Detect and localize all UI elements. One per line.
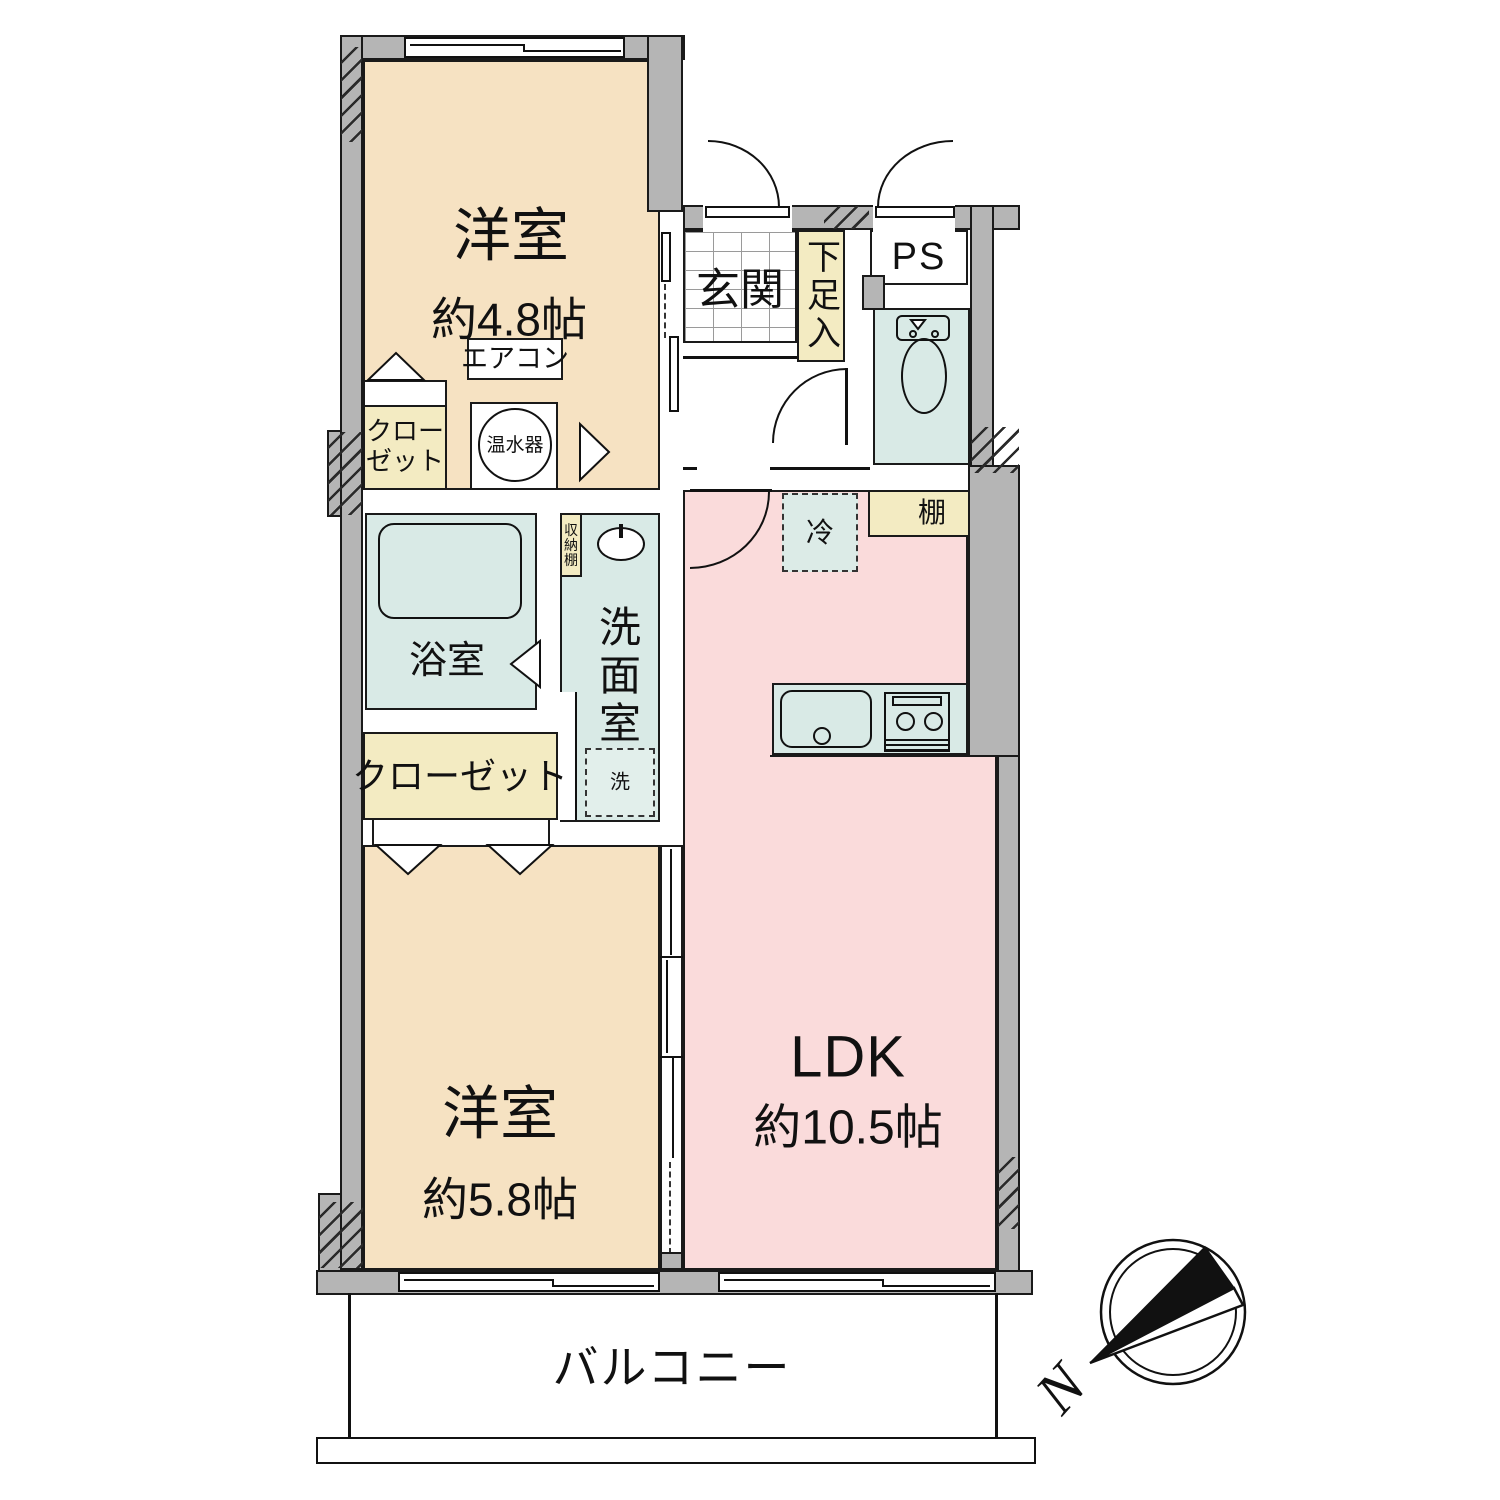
stove-grill-2 bbox=[886, 744, 948, 746]
closet-upper-door-strip bbox=[363, 380, 447, 407]
pipe-space-label: PS bbox=[892, 236, 947, 280]
balcony-rail bbox=[316, 1437, 1036, 1464]
refrigerator-label: 冷 bbox=[806, 517, 834, 549]
toilet-bolt-right bbox=[931, 330, 939, 338]
hatch-entrance-wall bbox=[824, 206, 869, 229]
ps-door-leaf bbox=[875, 206, 955, 218]
hatch-right-step bbox=[971, 427, 1019, 473]
compass-north-letter: N bbox=[1030, 1349, 1100, 1426]
ldk-name-label: LDK bbox=[790, 1025, 906, 1092]
floor-plan: N 洋室 約4.8帖 洋室 約5.8帖 LDK 約10.5帖 玄関 下足入 PS… bbox=[0, 0, 1500, 1500]
stove-grill-1 bbox=[886, 739, 948, 741]
entrance-door-leaf bbox=[705, 206, 790, 218]
partition-dashed-line bbox=[669, 1162, 671, 1254]
balcony-label: バルコニー bbox=[552, 1342, 791, 1395]
closet-upper-label-line1: クロー bbox=[366, 417, 444, 447]
wall-right-mid bbox=[968, 465, 1020, 757]
balcony-right-edge bbox=[995, 1293, 998, 1438]
compass-needle-light bbox=[1090, 1288, 1243, 1363]
hall-wall-line-2 bbox=[770, 467, 870, 470]
entrance-door-arc bbox=[708, 140, 780, 207]
partition-panel-line-3 bbox=[672, 1058, 674, 1158]
closet-lower-door-strip bbox=[372, 818, 550, 847]
toilet-bowl bbox=[901, 338, 947, 414]
partition-divider-1 bbox=[660, 956, 683, 958]
balcony-left-edge bbox=[348, 1293, 351, 1438]
partition-end-block bbox=[660, 1252, 683, 1270]
entrance-step-line bbox=[683, 356, 797, 359]
stove-top-bar bbox=[892, 696, 942, 706]
room1-size-label: 約4.8帖 bbox=[431, 294, 587, 347]
stove-grill-3 bbox=[886, 749, 948, 751]
bathroom-label: 浴室 bbox=[409, 640, 485, 684]
window-br-pane-1 bbox=[724, 1279, 884, 1281]
hatch-bottom-left bbox=[319, 1202, 363, 1268]
window-bottom-right bbox=[718, 1272, 996, 1292]
wash-basin-tap bbox=[619, 524, 623, 538]
window-bottom-left bbox=[398, 1272, 660, 1292]
ldk-seam-patch bbox=[685, 751, 770, 759]
toilet-bolt-left bbox=[909, 330, 917, 338]
hall-slider-panel-1 bbox=[661, 232, 671, 282]
window-top-pane-2 bbox=[523, 50, 621, 52]
hall-slider-dashed bbox=[664, 284, 666, 338]
stove-burner-right bbox=[924, 712, 943, 731]
room2-size-label: 約5.8帖 bbox=[422, 1174, 578, 1227]
closet-lower-label: クローゼット bbox=[352, 755, 568, 796]
compass-outer-circle bbox=[1101, 1240, 1245, 1384]
window-top-pane-1 bbox=[410, 44, 525, 46]
compass-needle-dark bbox=[1090, 1247, 1234, 1363]
shoe-cabinet-label: 下足入 bbox=[797, 239, 846, 353]
room-ldk-lower bbox=[683, 755, 997, 1270]
window-top bbox=[404, 37, 625, 58]
compass: N bbox=[1030, 1212, 1270, 1452]
room2-name-label: 洋室 bbox=[442, 1082, 558, 1149]
entrance-label: 玄関 bbox=[696, 266, 784, 317]
storage-shelf-label: 収納棚 bbox=[561, 523, 581, 568]
hatch-right-bottom bbox=[998, 1157, 1019, 1229]
shelf-label: 棚 bbox=[918, 497, 946, 529]
washroom-label: 洗面室 bbox=[587, 605, 648, 749]
air-conditioner-label: エアコン bbox=[461, 343, 569, 374]
wall-column-room1 bbox=[647, 35, 683, 212]
partition-divider-2 bbox=[660, 1056, 683, 1058]
closet-upper-label-line2: ゼット bbox=[366, 447, 444, 477]
toilet-door-leaf bbox=[845, 368, 848, 445]
room1-name-label: 洋室 bbox=[453, 204, 569, 271]
hatch-left-mid bbox=[328, 432, 362, 515]
sink-drain bbox=[813, 727, 831, 745]
window-bl-pane-2 bbox=[552, 1285, 654, 1287]
window-br-pane-2 bbox=[882, 1285, 990, 1287]
stove-burner-left bbox=[896, 712, 915, 731]
ldk-size-label: 約10.5帖 bbox=[753, 1100, 942, 1155]
partition-panel-line-2 bbox=[666, 960, 668, 1053]
partition-panel-line-1 bbox=[670, 849, 672, 955]
compass-inner-circle bbox=[1110, 1249, 1236, 1375]
water-heater-label: 温水器 bbox=[486, 435, 543, 457]
toilet-door-arc bbox=[772, 368, 847, 443]
bathtub bbox=[378, 523, 522, 619]
washing-machine-label: 洗 bbox=[610, 772, 630, 795]
hatch-top-left bbox=[341, 47, 362, 142]
closet-upper-label: クロー ゼット bbox=[366, 417, 444, 477]
ldk-door-leaf bbox=[690, 489, 772, 492]
hall-wall-line-1 bbox=[683, 467, 697, 470]
wall-ps-toilet-corner bbox=[862, 275, 885, 310]
hall-slider-panel-2 bbox=[669, 336, 679, 412]
ps-door-arc bbox=[877, 140, 953, 207]
window-bl-pane-1 bbox=[404, 1279, 554, 1281]
wall-left bbox=[340, 35, 363, 1270]
